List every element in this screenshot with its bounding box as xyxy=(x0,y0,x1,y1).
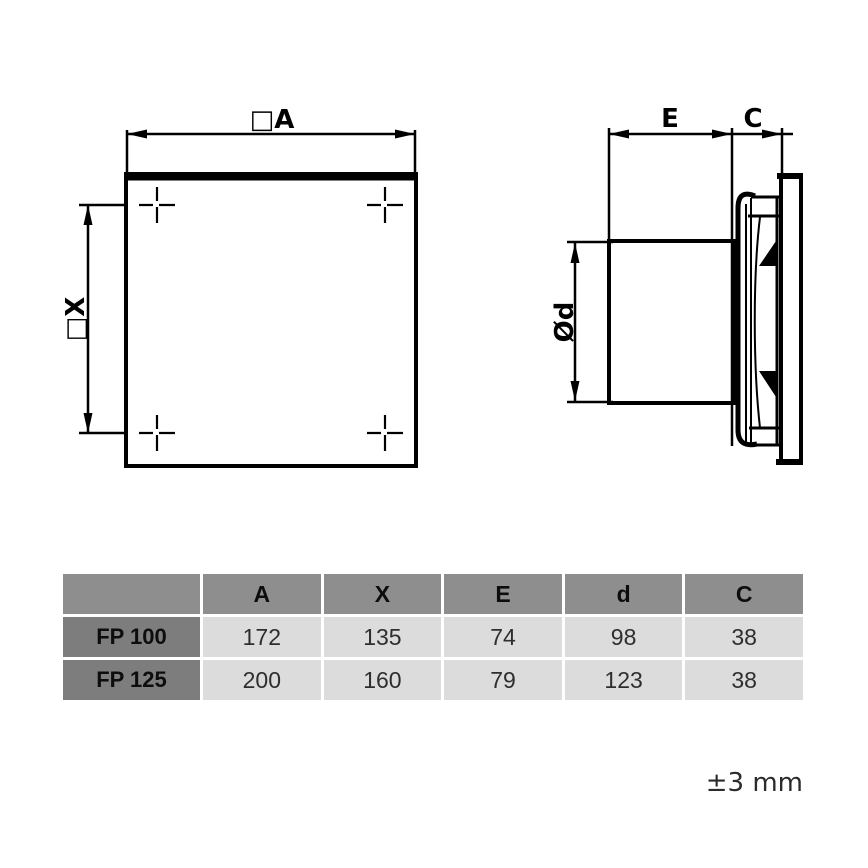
front-view: □A □X xyxy=(61,105,418,466)
table-cell: 123 xyxy=(565,660,683,700)
housing-flanges xyxy=(748,197,779,445)
front-panel-outline xyxy=(126,174,416,466)
table-header-E: E xyxy=(444,574,562,614)
table-cell: 38 xyxy=(685,660,803,700)
duct-outline xyxy=(609,241,734,403)
table-header-d: d xyxy=(565,574,683,614)
table-cell: 172 xyxy=(203,617,321,657)
dim-label-E: E xyxy=(661,104,679,134)
table-cell: 200 xyxy=(203,660,321,700)
table-cell: 98 xyxy=(565,617,683,657)
dim-label-C: C xyxy=(743,104,762,134)
table-header-X: X xyxy=(324,574,442,614)
page: □A □X E C Ød xyxy=(0,0,868,868)
technical-drawing: □A □X E C Ød xyxy=(0,0,868,520)
side-view: E C Ød xyxy=(550,104,803,463)
dim-label-d: Ød xyxy=(550,302,580,343)
table-header-corner xyxy=(63,574,200,614)
table-cell: 160 xyxy=(324,660,442,700)
table-header-A: A xyxy=(203,574,321,614)
wall-plate-outline xyxy=(781,175,801,463)
table-cell: 74 xyxy=(444,617,562,657)
dim-label-X: □X xyxy=(61,297,91,342)
table-row-model: FP 125 xyxy=(63,660,200,700)
table-cell: 79 xyxy=(444,660,562,700)
table-header-C: C xyxy=(685,574,803,614)
dimension-table: A X E d C FP 100 172 135 74 98 38 FP 125… xyxy=(63,574,803,700)
table-cell: 135 xyxy=(324,617,442,657)
fan-blade-sections xyxy=(759,241,776,397)
table-cell: 38 xyxy=(685,617,803,657)
table-row-model: FP 100 xyxy=(63,617,200,657)
dim-label-A: □A xyxy=(250,105,295,135)
housing-inner-lines xyxy=(746,198,760,444)
tolerance-note: ±3 mm xyxy=(63,768,803,798)
